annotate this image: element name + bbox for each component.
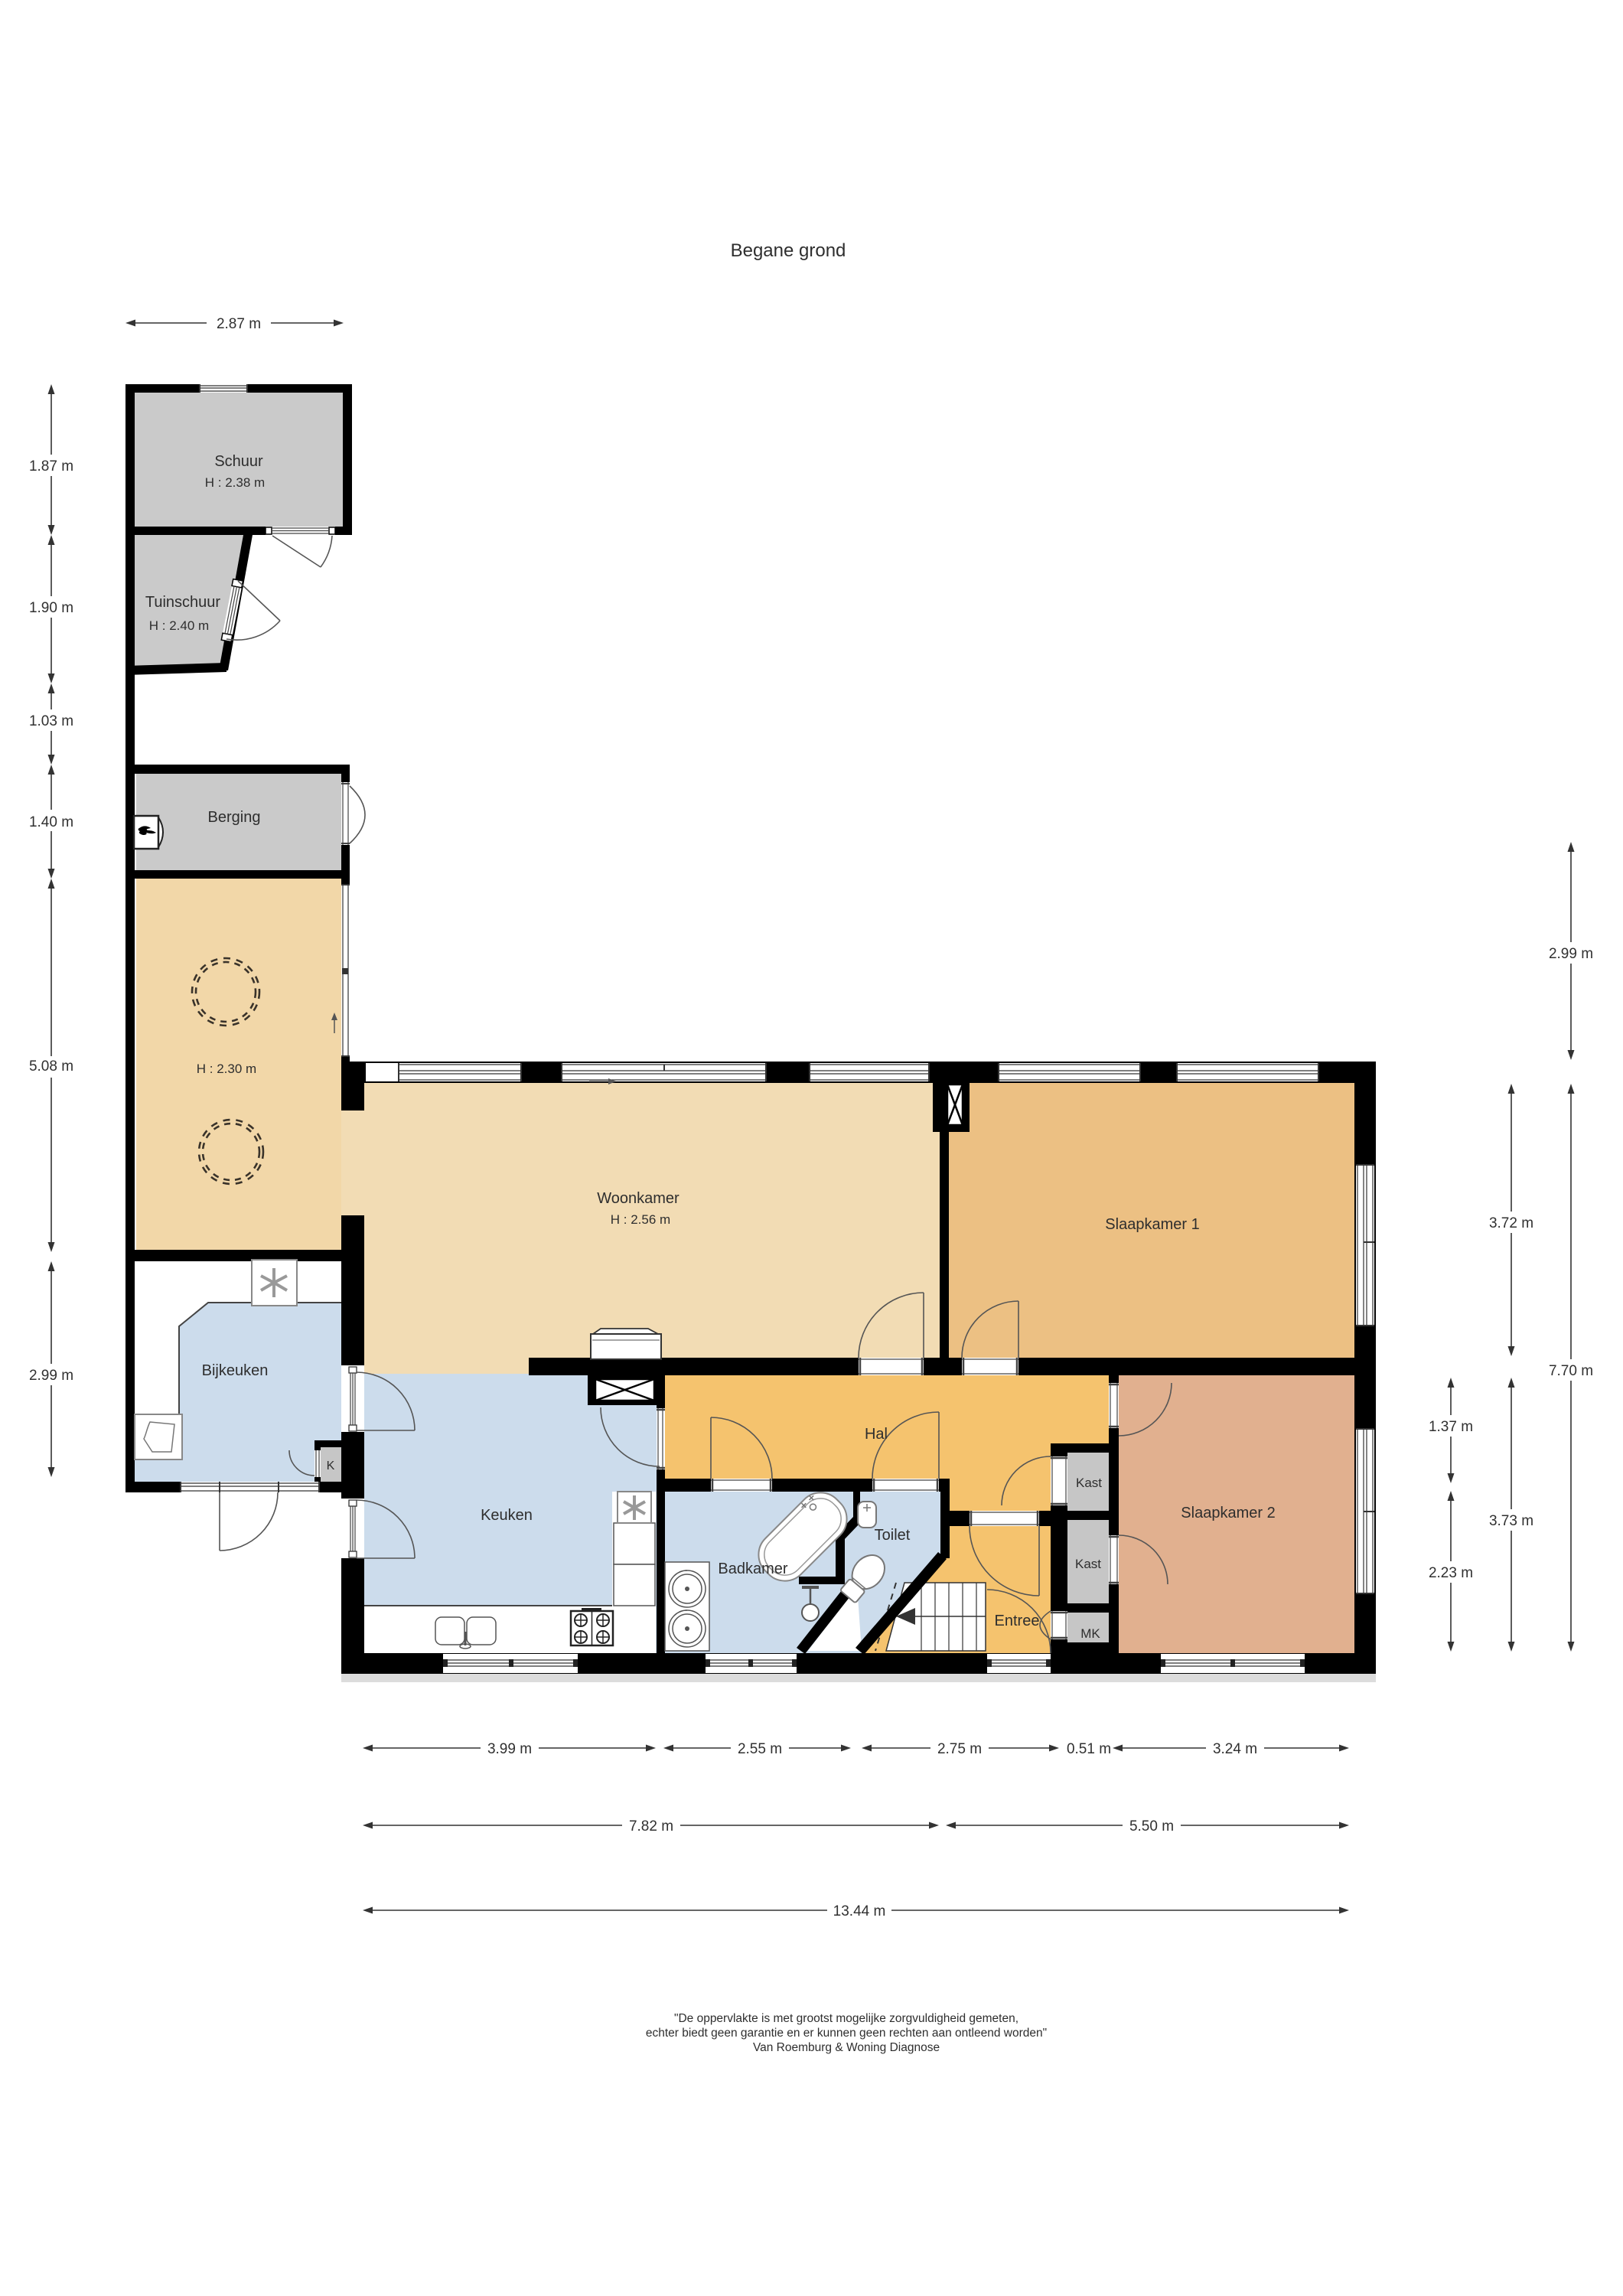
svg-text:Bijkeuken: Bijkeuken bbox=[202, 1362, 269, 1379]
svg-text:1.87 m: 1.87 m bbox=[29, 458, 73, 475]
svg-text:Toilet: Toilet bbox=[875, 1527, 911, 1544]
svg-text:MK: MK bbox=[1080, 1626, 1100, 1641]
svg-text:Berging: Berging bbox=[208, 809, 261, 826]
svg-text:Slaapkamer 2: Slaapkamer 2 bbox=[1181, 1505, 1275, 1521]
svg-text:2.55 m: 2.55 m bbox=[738, 1741, 782, 1757]
svg-text:5.50 m: 5.50 m bbox=[1129, 1818, 1174, 1835]
svg-text:3.72 m: 3.72 m bbox=[1489, 1215, 1533, 1231]
svg-text:"De oppervlakte is met grootst: "De oppervlakte is met grootst mogelijke… bbox=[674, 2012, 1018, 2025]
svg-text:Begane grond: Begane grond bbox=[731, 240, 846, 261]
svg-text:2.75 m: 2.75 m bbox=[937, 1741, 982, 1757]
svg-text:2.99 m: 2.99 m bbox=[29, 1368, 73, 1384]
svg-text:1.03 m: 1.03 m bbox=[29, 713, 73, 729]
svg-text:Keuken: Keuken bbox=[481, 1507, 533, 1524]
svg-text:Van Roemburg & Woning Diagnose: Van Roemburg & Woning Diagnose bbox=[753, 2041, 940, 2054]
svg-text:2.23 m: 2.23 m bbox=[1429, 1565, 1473, 1581]
svg-text:7.70 m: 7.70 m bbox=[1549, 1363, 1593, 1379]
svg-text:Kast: Kast bbox=[1075, 1557, 1101, 1571]
svg-text:H : 2.40 m: H : 2.40 m bbox=[149, 618, 209, 633]
svg-text:Schuur: Schuur bbox=[214, 453, 263, 470]
svg-text:3.99 m: 3.99 m bbox=[487, 1741, 532, 1757]
svg-text:0.51 m: 0.51 m bbox=[1067, 1741, 1111, 1757]
svg-text:3.24 m: 3.24 m bbox=[1213, 1741, 1257, 1757]
svg-text:2.87 m: 2.87 m bbox=[217, 316, 261, 332]
svg-text:13.44 m: 13.44 m bbox=[833, 1903, 886, 1919]
svg-text:1.90 m: 1.90 m bbox=[29, 600, 73, 616]
svg-text:Woonkamer: Woonkamer bbox=[597, 1190, 680, 1207]
svg-text:Kast: Kast bbox=[1076, 1476, 1102, 1490]
svg-text:7.82 m: 7.82 m bbox=[629, 1818, 673, 1835]
svg-text:3.73 m: 3.73 m bbox=[1489, 1513, 1533, 1529]
svg-text:Badkamer: Badkamer bbox=[718, 1561, 787, 1577]
svg-text:H : 2.30 m: H : 2.30 m bbox=[197, 1062, 256, 1076]
svg-text:Tuinschuur: Tuinschuur bbox=[145, 594, 221, 611]
svg-text:1.37 m: 1.37 m bbox=[1429, 1419, 1473, 1435]
svg-text:Hal: Hal bbox=[865, 1426, 888, 1443]
svg-text:H : 2.38 m: H : 2.38 m bbox=[205, 475, 265, 490]
svg-text:K: K bbox=[327, 1459, 335, 1473]
svg-text:5.08 m: 5.08 m bbox=[29, 1058, 73, 1075]
svg-text:H : 2.56 m: H : 2.56 m bbox=[611, 1212, 670, 1227]
svg-text:Slaapkamer 1: Slaapkamer 1 bbox=[1105, 1216, 1199, 1233]
svg-text:1.40 m: 1.40 m bbox=[29, 814, 73, 830]
svg-text:echter biedt geen garantie en: echter biedt geen garantie en er kunnen … bbox=[646, 2027, 1047, 2040]
svg-text:Entree: Entree bbox=[995, 1613, 1040, 1629]
svg-text:2.99 m: 2.99 m bbox=[1549, 946, 1593, 962]
